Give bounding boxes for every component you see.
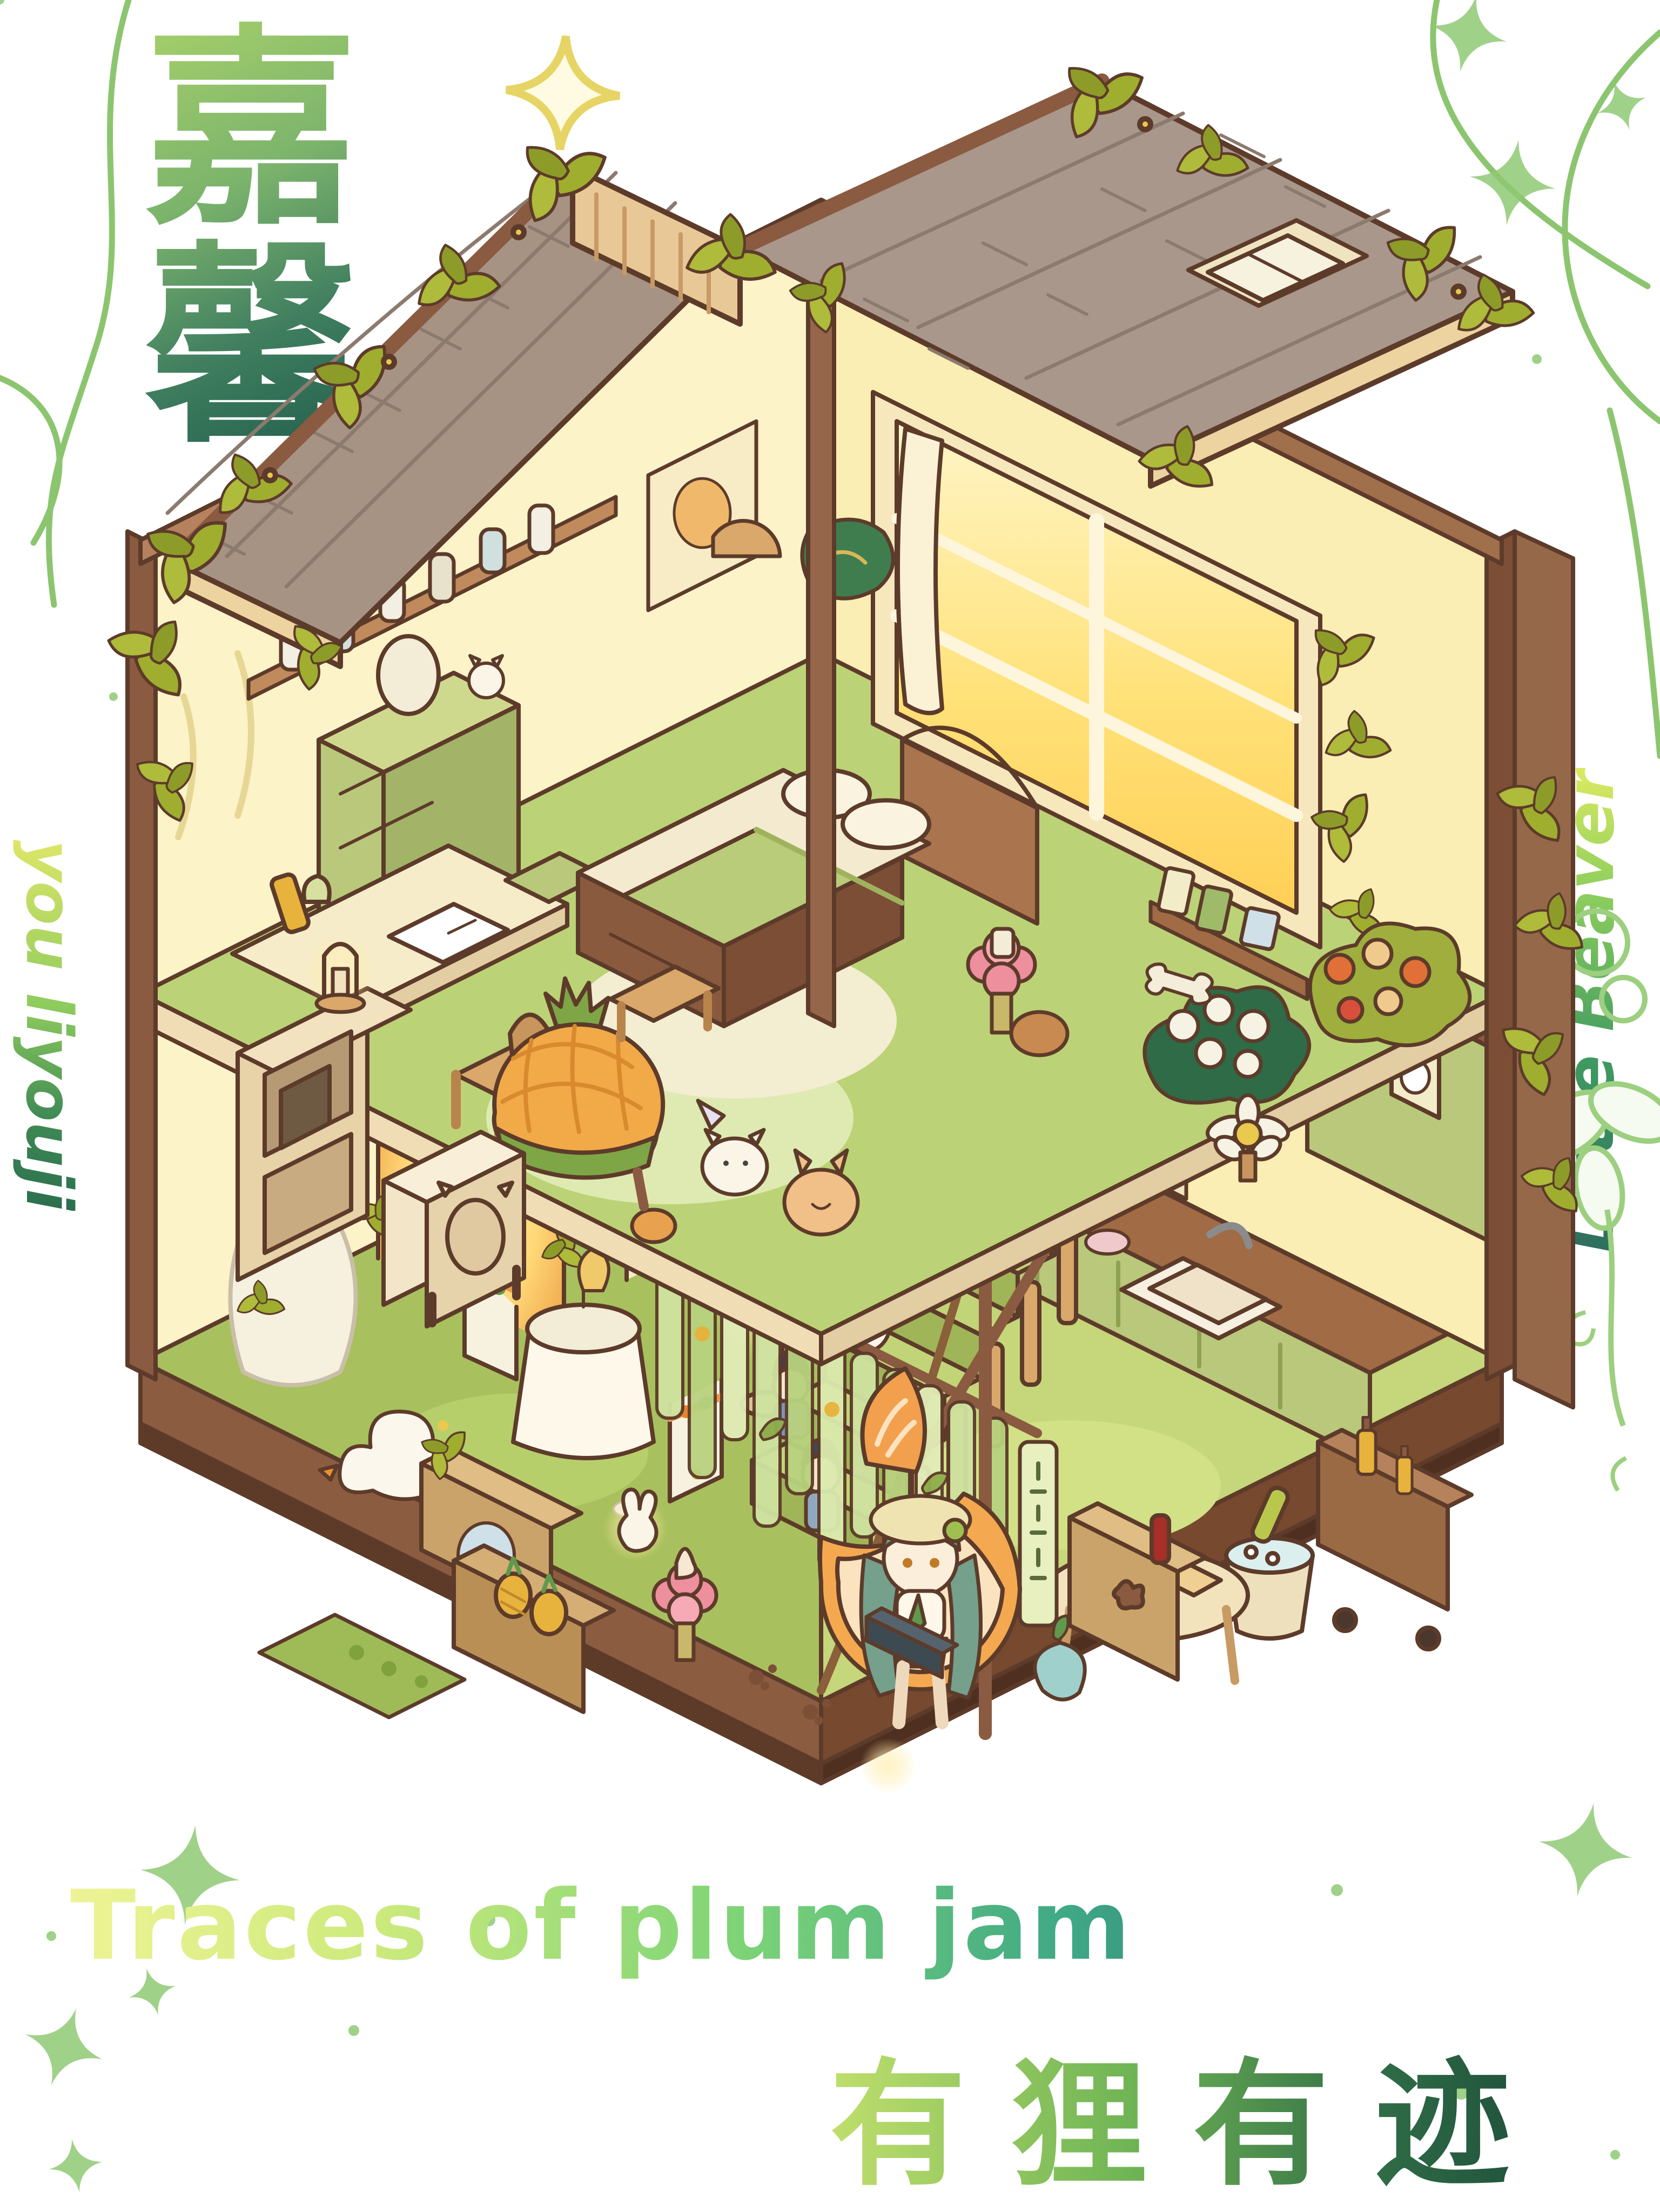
pink-bowl (1086, 1230, 1129, 1254)
hanging-sign-tablet (1020, 1442, 1057, 1626)
tiger-plush (632, 1210, 675, 1242)
curtain (898, 429, 942, 713)
bear-plush (1011, 1012, 1067, 1055)
poster: 嘉 馨 you liyouji Little Beaver Traces of … (0, 0, 1660, 2212)
title-english: Traces of plum jam (70, 1870, 1453, 1981)
grass-flower (438, 1420, 448, 1431)
candle-glow (860, 1738, 916, 1794)
clover-cutout (1114, 1581, 1143, 1608)
apple-charm (944, 1520, 966, 1541)
subtitle-cn: 有狸有迹 (783, 2014, 1556, 2211)
soda-bottle (1152, 1515, 1169, 1563)
pear-vase (304, 876, 329, 902)
snack-box (1240, 907, 1280, 950)
vanity-mirror (378, 636, 439, 714)
isometric-house-illustration (65, 49, 1588, 1874)
clover-mat (259, 1615, 465, 1717)
cat-plush (469, 656, 503, 698)
jar (992, 929, 1013, 957)
pillow (843, 800, 929, 848)
